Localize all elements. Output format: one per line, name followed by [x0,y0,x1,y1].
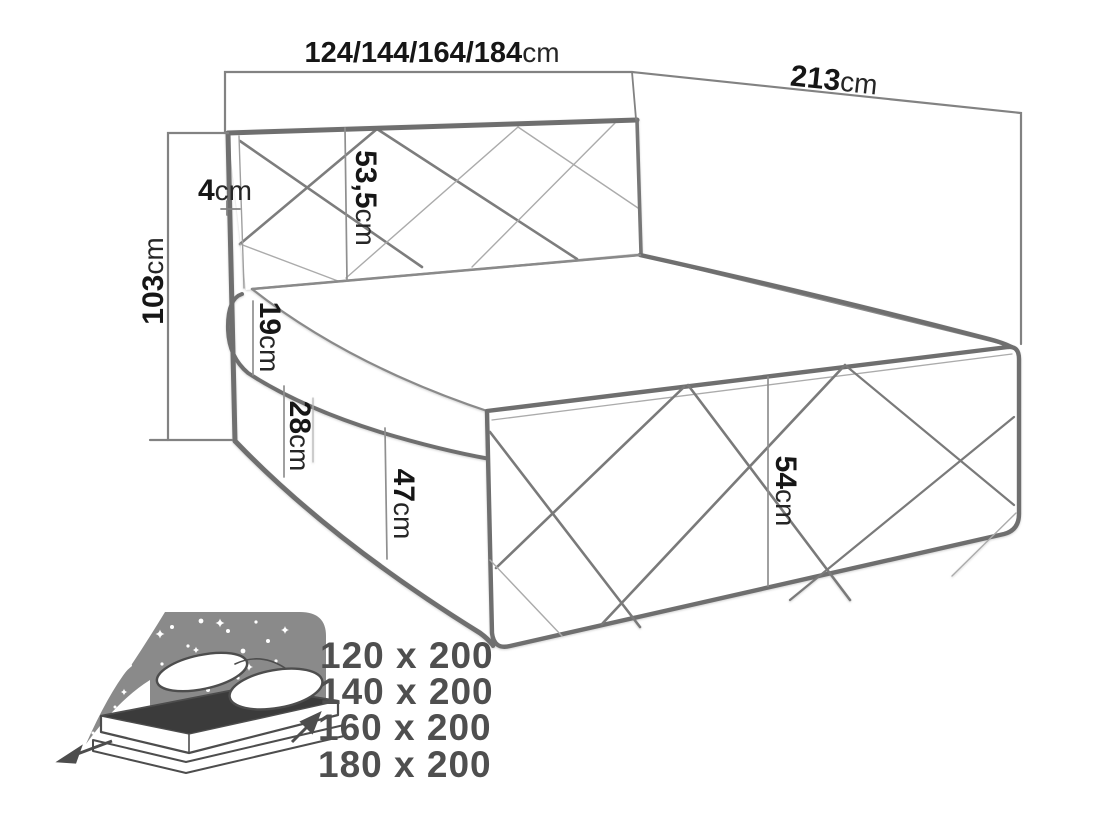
dim-tick-side [385,428,387,559]
label-side: 47cm [387,469,420,540]
base-box [235,398,493,646]
label-base: 28cm [283,401,316,472]
diagram-canvas: 124/144/164/184cm 213cm 103cm 4cm 53,5cm… [0,0,1101,825]
dim-tick-width-right [632,72,636,119]
size-option-4: 180 x 200 [318,744,492,785]
bed-dimension-diagram-page: 124/144/164/184cm 213cm 103cm 4cm 53,5cm… [0,0,1101,825]
label-depth: 213cm [789,60,879,102]
label-headboard-frame: 4cm [198,174,252,207]
size-option-2: 140 x 200 [320,671,494,712]
size-option-3: 160 x 200 [318,707,492,748]
label-headboard-panel: 53,5cm [349,150,382,246]
label-width: 124/144/164/184cm [304,37,559,69]
label-mattress: 19cm [253,302,286,373]
bed-size-icon [60,612,344,773]
label-footboard: 54cm [769,456,802,527]
label-height-total: 103cm [137,237,170,324]
size-option-1: 120 x 200 [320,635,494,676]
size-option-list: 120 x 200 140 x 200 160 x 200 180 x 200 [318,635,494,785]
